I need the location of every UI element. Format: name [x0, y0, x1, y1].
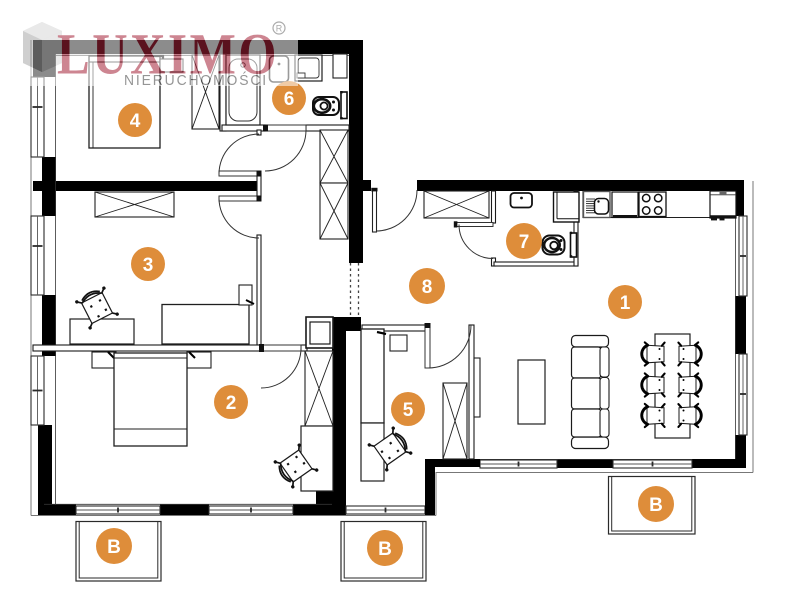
svg-text:7: 7: [519, 232, 530, 253]
svg-text:3: 3: [143, 255, 154, 276]
svg-text:8: 8: [422, 277, 433, 298]
svg-text:B: B: [378, 539, 392, 560]
svg-text:4: 4: [130, 111, 141, 132]
svg-text:6: 6: [284, 89, 295, 110]
svg-text:R: R: [276, 24, 283, 34]
svg-text:5: 5: [403, 400, 414, 421]
svg-text:2: 2: [226, 393, 237, 414]
svg-text:B: B: [649, 495, 663, 516]
svg-text:NIERUCHOMOŚCI: NIERUCHOMOŚCI: [124, 71, 268, 89]
svg-text:B: B: [107, 537, 121, 558]
svg-text:1: 1: [620, 293, 631, 314]
